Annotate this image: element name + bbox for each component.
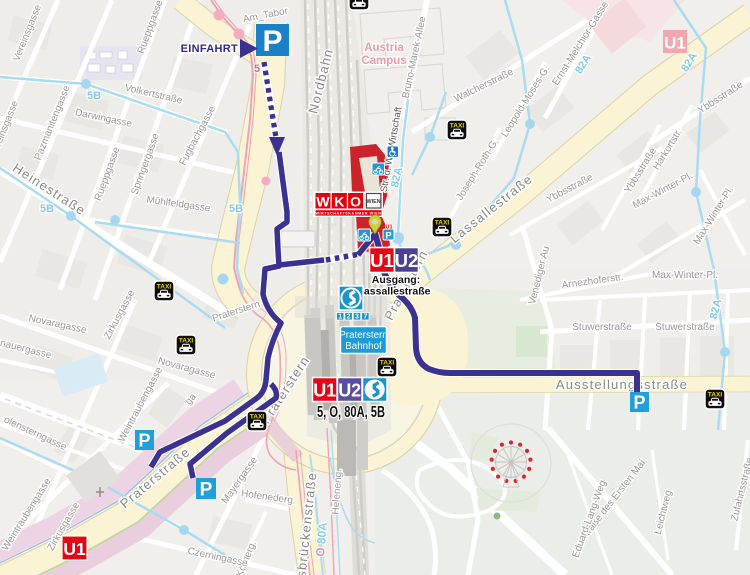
svg-text:U2: U2 [338, 381, 361, 401]
svg-text:WIEN: WIEN [367, 199, 381, 205]
svg-text:P: P [385, 230, 392, 241]
svg-text:Bahnhof: Bahnhof [345, 341, 382, 352]
svg-text:U1: U1 [664, 34, 686, 53]
svg-text:Lassallestraße: Lassallestraße [358, 286, 431, 298]
svg-text:U2: U2 [395, 250, 419, 271]
svg-text:WIRTSCHAFTSKAMMER WIEN: WIRTSCHAFTSKAMMER WIEN [316, 212, 382, 216]
svg-text:Austria: Austria [364, 42, 404, 54]
svg-text:U1: U1 [313, 381, 336, 401]
svg-text:Stuwerstraße: Stuwerstraße [655, 322, 715, 333]
svg-text:W: W [316, 194, 330, 210]
svg-text:Max-Winter-Pl.: Max-Winter-Pl. [652, 270, 718, 281]
svg-text:7: 7 [363, 314, 367, 321]
svg-text:Ausgang:: Ausgang: [372, 274, 420, 286]
svg-text:Ausstellungsstraße: Ausstellungsstraße [556, 377, 688, 392]
svg-text:U1: U1 [63, 539, 86, 559]
svg-text:5B: 5B [87, 90, 101, 102]
svg-text:5B: 5B [40, 203, 54, 215]
svg-text:Praterstern: Praterstern [339, 330, 387, 341]
svg-text:5: 5 [254, 63, 260, 75]
svg-text:P: P [200, 480, 213, 501]
svg-text:K: K [334, 194, 344, 210]
svg-text:5B: 5B [229, 203, 243, 215]
svg-text:2: 2 [347, 314, 351, 321]
svg-text:5, O, 80A, 5B: 5, O, 80A, 5B [317, 404, 385, 421]
svg-text:Campus: Campus [361, 55, 406, 67]
svg-text:O: O [350, 194, 361, 210]
svg-text:P: P [138, 431, 150, 451]
svg-text:P: P [262, 25, 282, 58]
svg-text:P: P [633, 393, 645, 413]
svg-text:U1: U1 [370, 250, 394, 271]
svg-text:EINFAHRT: EINFAHRT [181, 43, 238, 55]
svg-text:1: 1 [338, 314, 342, 321]
svg-text:Stuwerstraße: Stuwerstraße [572, 322, 632, 333]
svg-text:3: 3 [355, 314, 359, 321]
svg-text:U1: U1 [385, 225, 392, 231]
